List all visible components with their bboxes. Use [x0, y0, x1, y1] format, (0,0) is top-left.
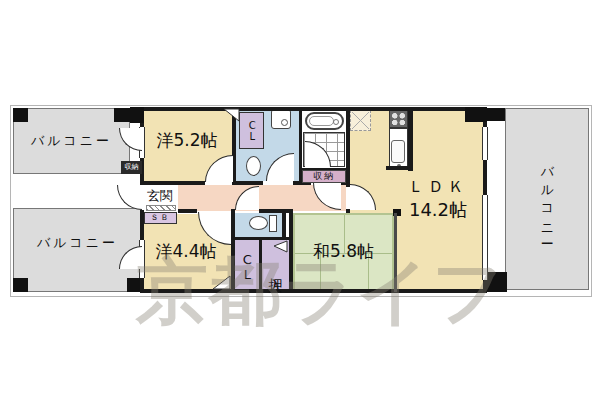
wall-bottom [140, 289, 487, 293]
kitchen-sink-icon [391, 140, 405, 163]
room-western-5-2-label: 洋5.2帖 [142, 130, 232, 152]
window [482, 127, 488, 160]
pillar-block [465, 107, 487, 122]
wall-partition [259, 209, 293, 213]
room-ldk-text: ＬＤＫ [408, 179, 468, 196]
balcony-top-left-label: バルコニー [31, 134, 112, 148]
room-ldk-size-text: 14.2帖 [409, 201, 467, 220]
closet-upper-label: CL [246, 120, 257, 142]
wall-partition [235, 237, 289, 240]
room-western-4-4-label: 洋4.4帖 [140, 241, 232, 263]
wall-right [483, 160, 487, 195]
room-ldk-lower [397, 213, 483, 292]
balcony-bottom-left-label: バルコニー [37, 236, 118, 250]
wall-partition [394, 213, 397, 292]
pillar-block [487, 108, 505, 121]
washbasin-icon [246, 156, 261, 176]
wall-left [140, 278, 144, 293]
pillar-block [13, 108, 28, 122]
closet-upper-box: CL [239, 112, 264, 149]
window [482, 195, 488, 280]
balcony-right: バルコニー [505, 108, 589, 290]
pillar-block [130, 107, 144, 123]
entrance-label: 玄関 [143, 187, 177, 205]
exterior-storage-box: 収納 [121, 161, 142, 174]
kitchen-wall [408, 107, 413, 171]
pillar-block [114, 108, 130, 122]
toilet-icon [249, 216, 268, 230]
kitchen-wall [386, 166, 413, 170]
exterior-storage-label: 収納 [125, 164, 139, 171]
pillar-block [13, 278, 28, 292]
room-ldk-size-label: 14.2帖 [394, 199, 482, 221]
room-western-5-2-text: 洋5.2帖 [156, 132, 217, 150]
room-japanese-5-8-label: 和5.8帖 [293, 241, 394, 263]
oshiire-label: 押入 [262, 242, 289, 292]
shoe-box: ＳＢ [144, 212, 177, 224]
wall-top [130, 107, 487, 111]
closet-lower-text: CL [240, 252, 254, 282]
room-western-4-4-text: 洋4.4帖 [155, 243, 216, 261]
stove-icon [389, 110, 408, 128]
balcony-bottom-left: バルコニー [13, 208, 142, 292]
wall-partition [178, 209, 197, 213]
wall-partition [233, 181, 263, 185]
room-ldk-label: ＬＤＫ [396, 177, 480, 197]
entrance-step [146, 205, 176, 211]
toilet-tank-icon [269, 215, 277, 232]
balcony-top-left: バルコニー [13, 108, 130, 174]
wall-partition [282, 211, 286, 237]
entrance-text: 玄関 [147, 189, 173, 203]
closet-lower-label: CL [235, 244, 259, 290]
refrigerator-space-icon [350, 110, 371, 131]
bath-storage-box: 収納 [302, 170, 346, 183]
balcony-right-label: バルコニー [540, 157, 554, 241]
room-japanese-5-8-text: 和5.8帖 [313, 243, 374, 261]
washing-machine-icon [271, 109, 291, 129]
wall-partition [140, 181, 205, 185]
wall-partition [346, 107, 350, 187]
bath-storage-label: 収納 [313, 172, 335, 181]
floor-plan: バルコニー バルコニー バルコニー [0, 0, 600, 400]
shoe-box-label: ＳＢ [151, 214, 171, 222]
bathtub-icon [305, 112, 344, 130]
